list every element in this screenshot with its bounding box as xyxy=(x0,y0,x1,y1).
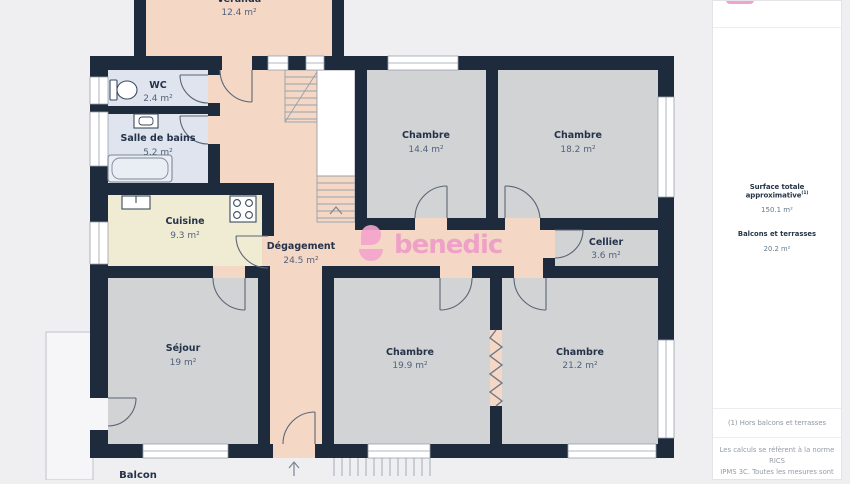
room-area-degagement: 24.5 m² xyxy=(283,256,319,266)
disclaimer-line-2: IPMS 3C. Toutes les mesures sont xyxy=(720,468,833,476)
room-area-salle-de-bains: 5.2 m² xyxy=(143,148,173,158)
room-area-chambre-2: 18.2 m² xyxy=(560,145,596,155)
brand-logo-text: benedic xyxy=(394,230,502,260)
room-area-chambre-3: 19.9 m² xyxy=(392,361,428,371)
room-label-wc: WC xyxy=(149,80,166,91)
kitchen-sink-icon xyxy=(122,196,150,209)
bathtub-icon xyxy=(108,155,172,182)
terrace-area xyxy=(46,332,93,480)
balconies-value: 20.2 m² xyxy=(764,245,791,253)
room-label-chambre-4: Chambre xyxy=(556,347,604,358)
room-area-cellier: 3.6 m² xyxy=(591,251,621,261)
balconies-title: Balcons et terrasses xyxy=(738,230,816,238)
surface-summary: Surface totale approximative(1) 150.1 m²… xyxy=(713,28,841,408)
brand-logo-partial xyxy=(726,1,754,4)
room-label-degagement: Dégagement xyxy=(267,241,336,252)
room-label-salle-de-bains: Salle de bains xyxy=(121,133,196,144)
sidebar-disclaimer: Les calculs se réfèrent à la norme RICS … xyxy=(713,437,841,479)
room-area-chambre-4: 21.2 m² xyxy=(562,361,598,371)
room-label-cuisine: Cuisine xyxy=(165,216,204,227)
room-area-sejour: 19 m² xyxy=(170,358,197,368)
stove-icon xyxy=(230,196,256,222)
room-label-chambre-1: Chambre xyxy=(402,130,450,141)
room-area-veranda: 12.4 m² xyxy=(221,8,257,18)
room-area-wc: 2.4 m² xyxy=(143,94,173,104)
room-label-sejour: Séjour xyxy=(166,343,201,354)
room-area-cuisine: 9.3 m² xyxy=(170,231,200,241)
room-label-veranda: Véranda xyxy=(217,0,261,5)
toilet-icon xyxy=(110,80,137,100)
room-label-balcon: Balcon xyxy=(119,470,157,480)
sidebar-footnote: (1) Hors balcons et terrasses xyxy=(713,408,841,437)
bedroom1-floor xyxy=(367,70,486,218)
surface-total-value: 150.1 m² xyxy=(761,206,793,214)
disclaimer-line-1: Les calculs se réfèrent à la norme RICS xyxy=(720,446,835,465)
room-area-chambre-1: 14.4 m² xyxy=(408,145,444,155)
bedroom2-floor xyxy=(498,70,658,218)
surface-total-title: Surface totale approximative(1) xyxy=(718,183,836,199)
room-label-cellier: Cellier xyxy=(589,237,624,248)
floor-plan: benedic Véranda 12.4 m² WC 2.4 m² Salle … xyxy=(0,0,713,480)
footnote-ref: (1) xyxy=(801,191,808,196)
info-sidebar: Surface totale approximative(1) 150.1 m²… xyxy=(712,0,842,480)
sidebar-header xyxy=(713,1,841,28)
bathroom-sink-icon xyxy=(134,114,158,128)
room-label-chambre-2: Chambre xyxy=(554,130,602,141)
room-label-chambre-3: Chambre xyxy=(386,347,434,358)
